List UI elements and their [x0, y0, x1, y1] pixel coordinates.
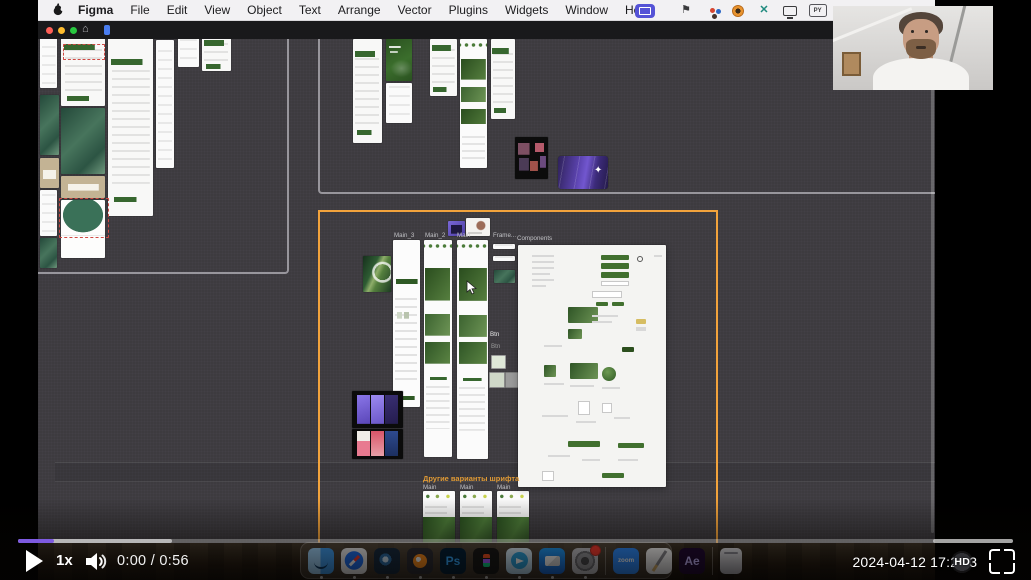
browser-icon[interactable] — [731, 4, 745, 18]
seek-bar[interactable] — [18, 539, 1013, 543]
running-indicator — [320, 576, 323, 579]
dock-separator — [712, 547, 713, 575]
dock-item-blender[interactable] — [407, 548, 433, 574]
frame-thumb-grid[interactable] — [515, 137, 548, 179]
presenter-eye-left — [911, 30, 914, 33]
component-item[interactable] — [602, 367, 616, 381]
frame-teal[interactable] — [494, 270, 515, 283]
frame-phones-color[interactable] — [352, 429, 403, 459]
dock-item-after-effects[interactable]: Ae — [679, 548, 705, 574]
palette-icon[interactable] — [705, 4, 719, 18]
component-item[interactable] — [637, 256, 643, 262]
frame-teal[interactable] — [40, 95, 59, 155]
component-item[interactable] — [601, 263, 629, 269]
mouse-cursor-icon — [466, 280, 477, 300]
component-item[interactable] — [612, 302, 624, 306]
component-item[interactable] — [654, 255, 662, 257]
frame-collage[interactable] — [460, 39, 487, 168]
frame-tan[interactable] — [40, 158, 59, 188]
component-item[interactable] — [532, 279, 554, 281]
frame-font-variant[interactable] — [423, 491, 455, 543]
frame-green-rows[interactable] — [108, 39, 153, 216]
play-button[interactable] — [26, 550, 43, 572]
component-item[interactable] — [636, 319, 646, 324]
frame-dark-green[interactable] — [386, 39, 412, 81]
component-item[interactable] — [601, 255, 629, 260]
frame-tan[interactable] — [61, 176, 105, 198]
component-item[interactable] — [576, 421, 596, 423]
frame-components[interactable] — [518, 245, 666, 487]
frame-white[interactable] — [40, 39, 57, 88]
component-item[interactable] — [592, 291, 622, 298]
dock-item-safari[interactable] — [341, 548, 367, 574]
frame-green-rows[interactable] — [353, 39, 382, 143]
presenter-eye-right — [925, 30, 928, 33]
layer-label[interactable]: Main — [460, 484, 473, 491]
fullscreen-button[interactable] — [989, 549, 1015, 574]
dock-item-finder[interactable] — [308, 548, 334, 574]
layer-label[interactable]: Main — [497, 484, 510, 491]
volume-button[interactable] — [86, 552, 110, 576]
frame-white[interactable] — [156, 40, 174, 168]
dock-item-zoom[interactable]: zoom — [613, 548, 639, 574]
player-right-controls: 2024-04-12 17:2 HD 3 — [852, 549, 1015, 574]
py-badge-icon[interactable]: PY — [809, 4, 827, 17]
component-item[interactable] — [578, 401, 590, 415]
layer-label[interactable]: Btn — [491, 343, 500, 350]
menu-item-edit[interactable]: Edit — [167, 3, 188, 17]
running-indicator — [584, 576, 587, 579]
dock-item-mail[interactable] — [539, 548, 565, 574]
dock-item-telegram[interactable] — [506, 548, 532, 574]
component-item[interactable] — [532, 255, 554, 257]
macos-dock: PszoomAe — [300, 542, 672, 579]
display-icon[interactable] — [783, 4, 797, 18]
frame-white[interactable] — [178, 39, 199, 67]
dock-item-trash[interactable] — [720, 548, 742, 574]
layer-label[interactable]: Components — [517, 235, 552, 242]
frame-red-dash[interactable] — [59, 198, 109, 238]
layer-label[interactable]: Main — [423, 484, 436, 491]
home-icon[interactable]: ⌂ — [82, 23, 89, 35]
dock-item-cinema-4d[interactable] — [374, 548, 400, 574]
component-item[interactable] — [601, 272, 629, 278]
frame-green-rows[interactable] — [202, 39, 231, 71]
minimize-window-button[interactable] — [58, 27, 65, 34]
hd-badge: HD — [954, 556, 970, 568]
menu-items: FigmaFileEditViewObjectTextArrangeVector… — [78, 3, 650, 17]
menu-item-window[interactable]: Window — [565, 3, 608, 17]
running-indicator — [518, 576, 521, 579]
component-item[interactable] — [544, 345, 562, 347]
component-item[interactable] — [622, 347, 634, 352]
notification-badge — [590, 545, 601, 556]
menu-item-view[interactable]: View — [204, 3, 230, 17]
component-item[interactable] — [582, 459, 600, 461]
running-indicator — [386, 576, 389, 579]
figma-canvas[interactable]: Main_3Main_2MainFrame...ComponentsBtnBtn… — [38, 39, 935, 543]
running-indicator — [485, 576, 488, 579]
time-display: 0:00 / 0:56 — [117, 553, 189, 569]
component-item[interactable] — [568, 329, 582, 339]
component-item[interactable] — [602, 387, 620, 389]
teal-x-icon[interactable]: ✕ — [757, 4, 771, 18]
frame-white[interactable] — [386, 83, 412, 123]
component-item[interactable] — [596, 302, 608, 306]
frame-green-rows[interactable] — [430, 39, 457, 96]
dock-separator — [605, 547, 606, 575]
dock-item-system-settings[interactable] — [572, 548, 598, 574]
running-indicator — [419, 576, 422, 579]
component-item[interactable] — [592, 321, 612, 323]
layer-label[interactable]: Main_3 — [394, 232, 414, 239]
component-item[interactable] — [602, 403, 612, 413]
component-item[interactable] — [570, 363, 598, 379]
menu-item-widgets[interactable]: Widgets — [505, 3, 548, 17]
component-item[interactable] — [532, 285, 546, 287]
layer-label[interactable]: Main — [457, 232, 470, 239]
component-item[interactable] — [544, 365, 556, 377]
frame-green-rows[interactable] — [491, 39, 515, 119]
frame-white[interactable] — [40, 190, 57, 236]
frame-phones-purple[interactable] — [352, 391, 403, 428]
component-item[interactable] — [614, 417, 630, 419]
menu-item-file[interactable]: File — [130, 3, 149, 17]
menu-bar-status-area: ⚑ ✕ PY — [635, 0, 827, 21]
frame-font-variant[interactable] — [497, 491, 529, 543]
presenter-shirt — [873, 58, 969, 90]
component-item[interactable] — [601, 281, 629, 286]
component-item[interactable] — [602, 473, 624, 478]
component-item[interactable] — [542, 415, 568, 417]
component-item[interactable] — [592, 315, 618, 317]
presenter-beard — [906, 39, 936, 59]
frame-white[interactable] — [493, 244, 515, 249]
apple-logo-icon[interactable] — [52, 3, 64, 17]
screen-sharing-indicator-icon[interactable] — [635, 4, 655, 18]
menu-item-vector[interactable]: Vector — [398, 3, 432, 17]
frame-main-rich[interactable] — [457, 240, 488, 459]
running-indicator — [551, 576, 554, 579]
component-item[interactable] — [618, 459, 638, 461]
running-indicator — [353, 576, 356, 579]
component-item[interactable] — [618, 443, 644, 448]
frame-leaf[interactable] — [363, 256, 391, 292]
layer-label[interactable]: Frame... — [493, 232, 516, 239]
component-item[interactable] — [532, 267, 554, 269]
macos-menu-bar: FigmaFileEditViewObjectTextArrangeVector… — [38, 0, 935, 21]
canvas-scrollbar[interactable] — [931, 45, 934, 533]
canvas-heading[interactable]: Другие варианты шрифта — [423, 475, 519, 483]
dock-item-notes[interactable] — [646, 548, 672, 574]
buffered-range-tail — [933, 539, 1013, 543]
layer-label[interactable]: Btn — [490, 331, 499, 338]
menu-item-arrange[interactable]: Arrange — [338, 3, 381, 17]
playback-speed[interactable]: 1x — [56, 552, 73, 569]
menu-item-plugins[interactable]: Plugins — [449, 3, 488, 17]
played-range — [18, 539, 54, 543]
dock-item-photoshop[interactable]: Ps — [440, 548, 466, 574]
frame-swatch-sage[interactable] — [489, 372, 505, 388]
quality-settings-button[interactable]: HD — [950, 550, 974, 574]
close-window-button[interactable] — [46, 27, 53, 34]
frame-white[interactable] — [493, 256, 515, 261]
figma-file-tab-icon[interactable] — [104, 25, 110, 35]
figma-window-titlebar: ⌂ — [38, 21, 935, 39]
component-item[interactable] — [542, 471, 554, 481]
webcam-overlay — [833, 6, 993, 90]
zoom-window-button[interactable] — [70, 27, 77, 34]
component-item[interactable] — [636, 327, 646, 331]
menu-item-text[interactable]: Text — [299, 3, 321, 17]
letterbox-left — [0, 0, 38, 580]
wall-picture — [842, 52, 861, 76]
running-indicator — [452, 576, 455, 579]
frame-main-rich[interactable] — [424, 240, 452, 457]
component-item[interactable] — [548, 455, 570, 457]
frame-red-dash[interactable] — [63, 44, 105, 60]
dock-item-figma[interactable] — [473, 548, 499, 574]
input-flag-icon[interactable]: ⚑ — [679, 4, 693, 18]
video-player-frame: FigmaFileEditViewObjectTextArrangeVector… — [0, 0, 1031, 580]
presenter-mouth — [916, 46, 926, 49]
menu-item-figma[interactable]: Figma — [78, 3, 113, 17]
frame-swatch-light[interactable] — [491, 355, 506, 369]
frame-teal[interactable] — [40, 238, 57, 268]
component-item[interactable] — [532, 273, 550, 275]
menu-item-object[interactable]: Object — [247, 3, 282, 17]
frame-font-variant[interactable] — [460, 491, 492, 543]
frame-teal[interactable] — [61, 108, 105, 174]
component-item[interactable] — [570, 385, 594, 387]
component-item[interactable] — [532, 261, 554, 263]
layer-label[interactable]: Main_2 — [425, 232, 445, 239]
recording-timestamp: 2024-04-12 17:2 — [852, 554, 958, 570]
frame-main-list[interactable] — [393, 240, 420, 407]
component-item[interactable] — [544, 383, 564, 385]
component-item[interactable] — [568, 441, 600, 447]
frame-sparkle[interactable] — [594, 166, 604, 178]
